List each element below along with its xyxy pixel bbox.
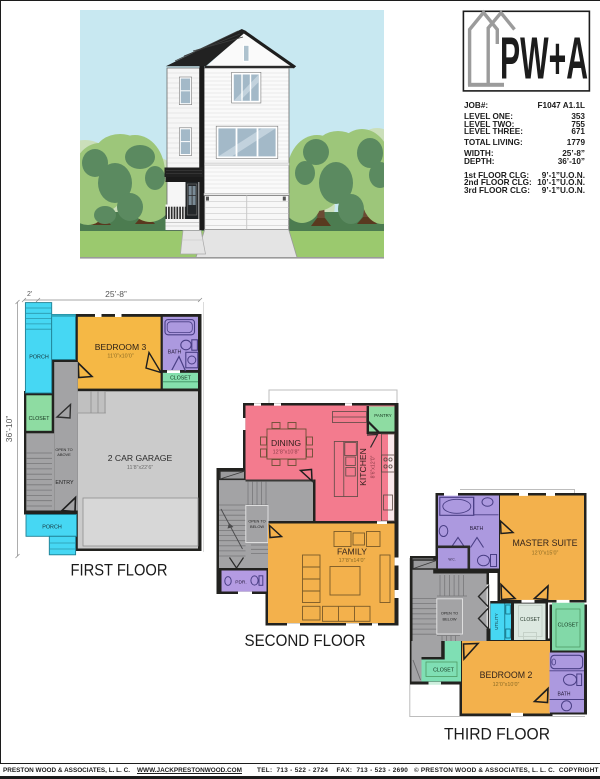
svg-text:36’-10”: 36’-10” — [5, 416, 14, 443]
svg-text:12’0”x10’0”: 12’0”x10’0” — [493, 682, 520, 688]
svg-text:17’8”x14’0”: 17’8”x14’0” — [339, 558, 366, 564]
svg-text:OPEN TO: OPEN TO — [441, 611, 458, 616]
svg-text:UTILITY: UTILITY — [494, 613, 499, 629]
svg-text:25’-8”: 25’-8” — [105, 289, 127, 299]
svg-text:BELOW: BELOW — [250, 524, 264, 529]
svg-text:11’0”x10’0”: 11’0”x10’0” — [107, 354, 133, 360]
svg-text:BATH: BATH — [558, 692, 571, 698]
svg-text:CLOSET: CLOSET — [520, 617, 540, 623]
svg-text:DINING: DINING — [271, 438, 301, 448]
svg-text:PORCH: PORCH — [29, 355, 49, 361]
svg-text:11’8”x22’6”: 11’8”x22’6” — [127, 465, 153, 471]
svg-text:8’6”x12’0”: 8’6”x12’0” — [371, 455, 377, 478]
svg-text:BEDROOM 3: BEDROOM 3 — [95, 342, 147, 352]
svg-text:12’0”x15’0”: 12’0”x15’0” — [532, 551, 559, 557]
svg-text:W.C.: W.C. — [448, 558, 455, 562]
svg-text:SECOND FLOOR: SECOND FLOOR — [245, 631, 366, 650]
svg-text:CLOSET: CLOSET — [29, 416, 51, 422]
svg-text:CLOSET: CLOSET — [170, 376, 192, 382]
svg-text:2’: 2’ — [27, 291, 33, 298]
svg-text:PORCH: PORCH — [42, 525, 62, 531]
svg-text:ENTRY: ENTRY — [55, 480, 74, 486]
svg-text:FIRST FLOOR: FIRST FLOOR — [71, 561, 168, 580]
svg-text:BATH: BATH — [470, 526, 484, 532]
svg-text:THIRD FLOOR: THIRD FLOOR — [444, 725, 550, 744]
svg-text:ABOVE: ABOVE — [57, 452, 71, 457]
svg-text:12’8”x10’8”: 12’8”x10’8” — [273, 450, 300, 456]
svg-text:PW+A: PW+A — [500, 26, 588, 92]
svg-text:PANTRY: PANTRY — [374, 413, 391, 418]
svg-text:PDR.: PDR. — [235, 580, 246, 586]
svg-text:BATH: BATH — [168, 350, 182, 356]
svg-text:KITCHEN: KITCHEN — [358, 448, 368, 486]
svg-text:BEDROOM 2: BEDROOM 2 — [480, 670, 533, 680]
svg-text:CLOSET: CLOSET — [558, 623, 580, 629]
svg-text:2 CAR GARAGE: 2 CAR GARAGE — [108, 453, 173, 463]
svg-text:OPEN TO: OPEN TO — [248, 519, 265, 524]
svg-text:FAMILY: FAMILY — [337, 547, 367, 557]
svg-text:MASTER SUITE: MASTER SUITE — [512, 538, 577, 548]
svg-text:BELOW: BELOW — [442, 617, 456, 622]
svg-text:CLOSET: CLOSET — [433, 668, 455, 674]
